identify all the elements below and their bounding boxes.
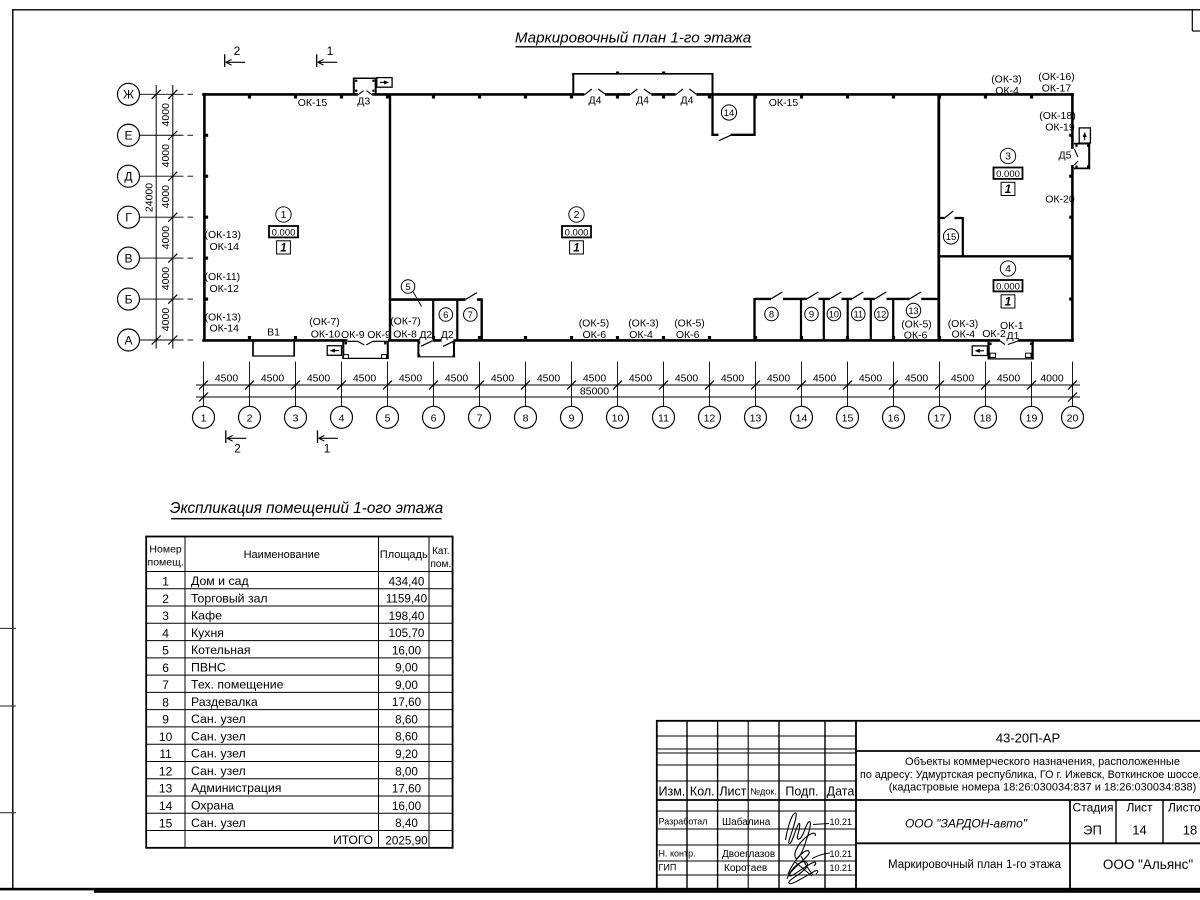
svg-text:ООО "Альянс": ООО "Альянс"	[1103, 857, 1193, 872]
svg-text:8,00: 8,00	[395, 765, 418, 778]
svg-text:3: 3	[162, 609, 169, 623]
svg-text:2: 2	[162, 592, 169, 606]
svg-text:ОК-19: ОК-19	[1045, 121, 1075, 133]
svg-text:6: 6	[162, 661, 169, 675]
svg-text:14: 14	[796, 412, 808, 424]
svg-text:9,20: 9,20	[395, 748, 418, 761]
svg-text:6: 6	[431, 412, 437, 424]
svg-text:(ОК-7): (ОК-7)	[390, 315, 421, 327]
svg-text:Сан. узел: Сан. узел	[191, 816, 246, 830]
svg-text:Наименование: Наименование	[244, 549, 320, 561]
svg-text:ОК-9: ОК-9	[341, 329, 365, 341]
svg-text:8,60: 8,60	[395, 713, 418, 726]
svg-text:0.000: 0.000	[996, 281, 1020, 292]
svg-text:4500: 4500	[721, 372, 745, 384]
svg-text:Лист: Лист	[719, 784, 746, 798]
svg-text:6: 6	[443, 310, 448, 321]
svg-text:Б: Б	[125, 292, 133, 306]
svg-text:5: 5	[405, 282, 410, 293]
svg-text:2025,90: 2025,90	[385, 834, 428, 847]
svg-text:1: 1	[1005, 184, 1011, 196]
svg-text:4000: 4000	[160, 103, 172, 127]
svg-text:10: 10	[829, 310, 839, 320]
svg-text:12: 12	[704, 412, 716, 424]
svg-text:(ОК-16): (ОК-16)	[1038, 71, 1074, 83]
svg-text:Двоеглазов: Двоеглазов	[722, 849, 775, 860]
svg-text:10.21: 10.21	[830, 817, 853, 827]
svg-text:4500: 4500	[491, 372, 515, 384]
svg-text:4000: 4000	[160, 185, 172, 209]
svg-text:Коротаев: Коротаев	[724, 863, 767, 874]
svg-text:Е: Е	[124, 129, 132, 143]
svg-text:Н. контр.: Н. контр.	[659, 849, 696, 859]
svg-text:Охрана: Охрана	[191, 799, 234, 813]
svg-text:ОК-6: ОК-6	[582, 329, 606, 341]
svg-text:Экспликация помещений 1-ого эт: Экспликация помещений 1-ого этажа	[170, 500, 443, 517]
svg-text:ПВНС: ПВНС	[191, 660, 226, 674]
svg-text:85000: 85000	[580, 385, 609, 397]
svg-text:Администрация: Администрация	[191, 781, 281, 795]
svg-text:20: 20	[1067, 412, 1079, 424]
svg-text:10: 10	[159, 730, 173, 744]
svg-text:помещ.: помещ.	[148, 557, 184, 569]
svg-text:11: 11	[159, 747, 172, 761]
svg-text:5: 5	[385, 412, 391, 424]
svg-text:4500: 4500	[537, 372, 561, 384]
svg-text:4500: 4500	[951, 372, 975, 384]
svg-text:0.000: 0.000	[565, 227, 589, 238]
svg-text:1159,40: 1159,40	[386, 593, 428, 606]
svg-text:4500: 4500	[905, 372, 929, 384]
svg-text:4: 4	[162, 626, 169, 640]
svg-text:5: 5	[162, 644, 169, 658]
svg-text:ОК-4: ОК-4	[995, 85, 1019, 97]
svg-text:Д4: Д4	[589, 94, 602, 106]
svg-text:Маркировочный план 1-го этажа: Маркировочный план 1-го этажа	[515, 30, 751, 47]
svg-text:2: 2	[234, 44, 241, 58]
svg-text:по адресу: Удмуртская республи: по адресу: Удмуртская республика, ГО г. …	[860, 769, 1200, 781]
svg-text:434,40: 434,40	[389, 575, 425, 588]
svg-text:7: 7	[477, 412, 483, 424]
svg-text:(ОК-5): (ОК-5)	[674, 317, 705, 329]
svg-text:8,40: 8,40	[395, 817, 418, 830]
svg-text:ГИП: ГИП	[659, 863, 677, 873]
svg-text:4500: 4500	[675, 372, 699, 384]
svg-text:Ж: Ж	[123, 88, 134, 102]
svg-text:13: 13	[750, 412, 762, 424]
svg-text:ОК-12: ОК-12	[210, 283, 240, 295]
svg-text:17: 17	[934, 412, 946, 424]
svg-text:ОК-6: ОК-6	[676, 329, 700, 341]
svg-text:15: 15	[946, 232, 957, 243]
svg-text:1: 1	[1005, 296, 1011, 308]
svg-text:Д5: Д5	[1059, 149, 1072, 161]
svg-text:16,00: 16,00	[392, 644, 422, 657]
svg-text:4500: 4500	[261, 372, 285, 384]
svg-text:4500: 4500	[353, 372, 377, 384]
svg-text:4: 4	[339, 412, 345, 424]
svg-text:Д2: Д2	[441, 329, 454, 341]
svg-text:Дом и сад: Дом и сад	[191, 574, 249, 588]
svg-text:Маркировочный план 1-го этажа: Маркировочный план 1-го этажа	[888, 859, 1062, 871]
svg-text:Изм.: Изм.	[659, 784, 686, 798]
svg-text:8,60: 8,60	[395, 731, 418, 744]
svg-text:15: 15	[159, 816, 173, 830]
svg-text:1: 1	[201, 412, 207, 424]
svg-text:3: 3	[1005, 151, 1011, 163]
svg-text:16: 16	[888, 412, 900, 424]
svg-text:пом.: пом.	[430, 559, 451, 570]
svg-text:Д: Д	[124, 170, 132, 184]
svg-text:ОК-8: ОК-8	[393, 328, 417, 340]
svg-text:18: 18	[980, 412, 992, 424]
svg-text:Котельная: Котельная	[191, 643, 251, 657]
svg-text:(ОК-3): (ОК-3)	[991, 73, 1022, 85]
svg-text:18: 18	[1183, 823, 1197, 838]
svg-text:Объекты коммерческого назначен: Объекты коммерческого назначения, распол…	[905, 756, 1180, 768]
svg-text:Тех. помещение: Тех. помещение	[191, 678, 284, 692]
svg-text:Сан. узел: Сан. узел	[191, 729, 246, 743]
svg-text:ОК-10: ОК-10	[311, 328, 341, 340]
svg-text:Д2: Д2	[419, 329, 432, 341]
svg-text:12: 12	[876, 310, 886, 320]
svg-text:2: 2	[247, 412, 253, 424]
svg-text:Кухня: Кухня	[191, 626, 224, 640]
svg-text:12: 12	[159, 764, 173, 778]
svg-text:Стадия: Стадия	[1073, 801, 1114, 815]
svg-text:(ОК-18): (ОК-18)	[1039, 110, 1075, 122]
svg-text:4000: 4000	[160, 226, 172, 250]
svg-text:(ОК-5): (ОК-5)	[579, 317, 610, 329]
svg-text:9: 9	[162, 713, 169, 727]
svg-text:24000: 24000	[144, 183, 156, 212]
svg-text:А: А	[124, 333, 132, 347]
svg-text:16,00: 16,00	[392, 800, 422, 813]
svg-text:ОК-14: ОК-14	[210, 241, 240, 253]
svg-text:4500: 4500	[215, 372, 239, 384]
svg-text:10.21: 10.21	[830, 863, 853, 873]
svg-text:8: 8	[162, 695, 169, 709]
svg-text:17,60: 17,60	[392, 783, 422, 796]
svg-text:4500: 4500	[767, 372, 791, 384]
svg-text:Д4: Д4	[636, 94, 649, 106]
svg-text:2: 2	[234, 441, 241, 455]
svg-text:ОК-20: ОК-20	[1045, 193, 1075, 205]
svg-text:1: 1	[280, 242, 286, 254]
svg-text:11: 11	[658, 412, 669, 424]
svg-text:1: 1	[324, 441, 331, 455]
svg-text:Листов: Листов	[1168, 801, 1200, 815]
svg-text:Номер: Номер	[149, 544, 181, 556]
svg-text:1: 1	[573, 242, 579, 254]
svg-text:Сан. узел: Сан. узел	[191, 712, 246, 726]
svg-text:ОК-9: ОК-9	[367, 329, 391, 341]
svg-text:В1: В1	[267, 326, 280, 338]
svg-text:(ОК-7): (ОК-7)	[309, 316, 340, 328]
svg-text:2: 2	[574, 209, 580, 221]
svg-text:ОК-4: ОК-4	[951, 329, 975, 341]
svg-text:4500: 4500	[629, 372, 653, 384]
svg-text:8: 8	[769, 310, 774, 321]
svg-text:ИТОГО: ИТОГО	[333, 833, 373, 847]
svg-text:В: В	[124, 251, 132, 265]
svg-text:14: 14	[724, 108, 735, 119]
svg-text:13: 13	[908, 306, 918, 316]
svg-text:0.000: 0.000	[272, 227, 296, 238]
svg-text:Д3: Д3	[357, 95, 370, 107]
svg-text:9,00: 9,00	[395, 662, 418, 675]
svg-text:ЭП: ЭП	[1083, 823, 1102, 838]
svg-text:№док.: №док.	[750, 786, 776, 796]
svg-text:10: 10	[612, 412, 624, 424]
svg-text:105,70: 105,70	[389, 627, 425, 640]
svg-text:(ОК-11): (ОК-11)	[205, 271, 241, 283]
svg-text:13: 13	[159, 782, 173, 796]
svg-text:17,60: 17,60	[392, 696, 422, 709]
svg-text:Шабалина: Шабалина	[722, 816, 771, 828]
svg-text:(ОК-13): (ОК-13)	[205, 229, 241, 241]
svg-text:8: 8	[523, 412, 529, 424]
svg-text:14: 14	[159, 799, 173, 813]
svg-text:ОК-14: ОК-14	[210, 323, 240, 335]
svg-text:198,40: 198,40	[389, 610, 425, 623]
svg-text:4500: 4500	[859, 372, 883, 384]
svg-text:Кат.: Кат.	[432, 546, 449, 557]
svg-text:4000: 4000	[1040, 372, 1064, 384]
svg-text:4500: 4500	[399, 372, 423, 384]
svg-text:4000: 4000	[160, 144, 172, 168]
svg-text:Разработал: Разработал	[659, 817, 708, 827]
svg-text:ОК-4: ОК-4	[629, 329, 653, 341]
svg-text:19: 19	[1026, 412, 1038, 424]
svg-text:(кадастровые номера 18:26:0300: (кадастровые номера 18:26:030034:837 и 1…	[889, 782, 1197, 794]
svg-text:Подп.: Подп.	[785, 784, 818, 798]
svg-text:4500: 4500	[997, 372, 1021, 384]
svg-text:Площадь: Площадь	[380, 549, 428, 561]
svg-text:1: 1	[162, 575, 169, 589]
svg-text:Д4: Д4	[681, 94, 694, 106]
svg-text:Д1: Д1	[1007, 330, 1020, 342]
svg-text:4000: 4000	[160, 308, 172, 332]
svg-text:Кол.: Кол.	[690, 784, 715, 798]
svg-text:1: 1	[327, 44, 334, 58]
svg-text:Г: Г	[125, 210, 132, 224]
svg-text:7: 7	[468, 310, 473, 321]
svg-text:Торговый зал: Торговый зал	[191, 591, 268, 605]
svg-text:ОК-17: ОК-17	[1042, 82, 1072, 94]
svg-text:9: 9	[569, 412, 575, 424]
svg-text:(ОК-3): (ОК-3)	[628, 317, 659, 329]
svg-text:4500: 4500	[813, 372, 837, 384]
svg-text:Кафе: Кафе	[191, 609, 222, 623]
svg-text:43-20П-АР: 43-20П-АР	[996, 731, 1060, 746]
svg-text:Дата: Дата	[827, 784, 855, 798]
svg-text:4000: 4000	[160, 267, 172, 291]
svg-text:1: 1	[281, 209, 287, 221]
svg-text:ОК-15: ОК-15	[298, 97, 328, 109]
svg-text:Лист: Лист	[1126, 801, 1153, 815]
svg-text:4: 4	[1005, 263, 1011, 275]
svg-text:Сан. узел: Сан. узел	[191, 764, 246, 778]
svg-text:7: 7	[162, 678, 169, 692]
svg-text:10.21: 10.21	[830, 849, 853, 859]
svg-text:14: 14	[1132, 823, 1146, 838]
svg-text:15: 15	[842, 412, 854, 424]
svg-text:ООО "ЗАРДОН-авто": ООО "ЗАРДОН-авто"	[905, 817, 1028, 831]
svg-text:3: 3	[293, 412, 299, 424]
svg-text:4500: 4500	[583, 372, 607, 384]
svg-text:9: 9	[809, 310, 814, 321]
svg-text:ОК-15: ОК-15	[769, 97, 799, 109]
svg-text:Раздевалка: Раздевалка	[191, 695, 258, 709]
svg-text:0.000: 0.000	[996, 169, 1020, 180]
svg-text:Сан. узел: Сан. узел	[191, 747, 246, 761]
svg-text:9,00: 9,00	[395, 679, 418, 692]
svg-text:4500: 4500	[307, 372, 331, 384]
svg-text:4500: 4500	[445, 372, 469, 384]
svg-text:11: 11	[854, 310, 863, 320]
svg-text:ОК-6: ОК-6	[904, 330, 928, 342]
